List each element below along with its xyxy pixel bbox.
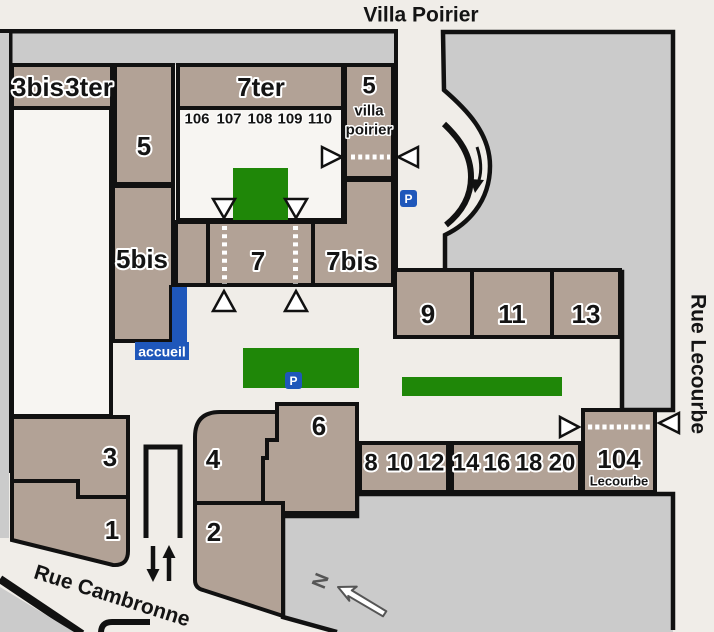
map-canvas: accueil P P Villa Poirier Rue Lecourbe R… [0,0,714,632]
building-7-label: 7 [251,246,265,276]
building-3ter-label: 3ter [65,72,113,102]
courtyard-west [12,108,111,416]
street-rue-lecourbe-label: Rue Lecourbe [687,294,710,434]
unit-109-label: 109 [277,111,302,128]
campus-map: accueil P P Villa Poirier Rue Lecourbe R… [0,0,714,632]
curb-top [0,29,397,34]
street-villa-poirier-label: Villa Poirier [363,4,478,27]
building-20-label: 20 [549,450,576,477]
sidewalk-top [0,33,396,65]
building-4-label: 4 [206,444,221,474]
building-8-label: 8 [364,450,377,477]
building-12-label: 12 [418,450,445,477]
building-7ter-label: 7ter [237,72,285,102]
building-7bis-label: 7bis [326,246,378,276]
building-16-label: 16 [484,450,511,477]
parking-icon-letter: P [289,374,297,388]
building-3bis-label: 3bis [12,72,64,102]
building-9-label: 9 [421,299,435,329]
building-14-label: 14 [453,450,480,477]
building-11-label: 11 [498,299,526,329]
unit-107-label: 107 [216,111,241,128]
sidewalk-left [0,33,9,538]
building-18-label: 18 [516,450,543,477]
building-5vp-line1: villa [354,103,384,120]
reception-bar [172,287,187,343]
building-7 [176,222,313,285]
green-space-courtyard [233,168,288,220]
unit-110-label: 110 [308,111,332,128]
building-1-label: 1 [105,515,119,545]
building-104-number: 104 [597,444,641,474]
building-5vp-line2: poirier [346,122,393,139]
building-6-label: 6 [312,411,326,441]
parking-icon-letter: P [404,192,412,206]
building-3-label: 3 [103,442,117,472]
building-5bis-label: 5bis [116,244,168,274]
building-5 [115,65,173,184]
building-5vp-number: 5 [362,73,375,100]
building-5-label: 5 [137,131,151,161]
building-104-name: Lecourbe [590,474,649,489]
unit-106-label: 106 [184,111,209,128]
building-6 [263,404,357,513]
green-space-east [402,377,562,396]
building-10-label: 10 [387,450,414,477]
building-13-label: 13 [572,299,601,329]
reception-label: accueil [138,344,185,360]
unit-108-label: 108 [247,111,272,128]
building-2-label: 2 [207,517,221,547]
